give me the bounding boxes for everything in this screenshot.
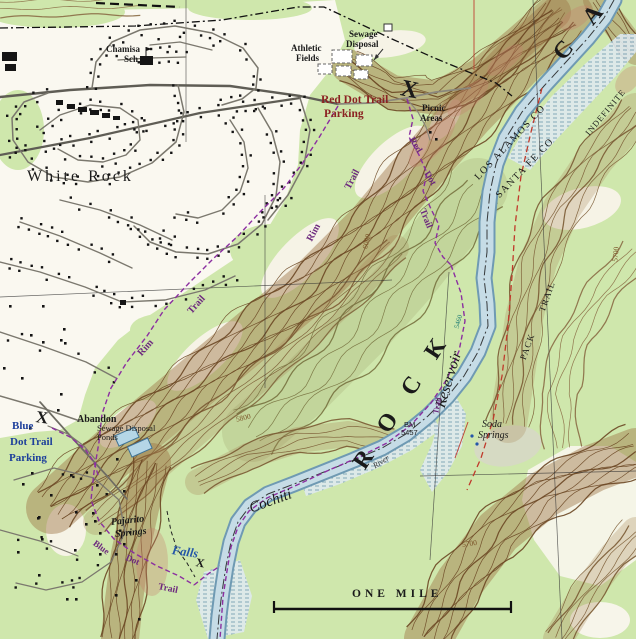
label-x-falls: X xyxy=(195,556,206,569)
label-town: White Rock xyxy=(27,169,134,185)
label-sewage-1: Sewage xyxy=(349,30,378,39)
spring-symbol xyxy=(470,434,473,437)
label-bm-elevation: 5457 xyxy=(401,429,418,437)
label-sewage-2: Disposal xyxy=(346,40,379,49)
label-school-2: Sch xyxy=(124,55,138,64)
label-picnic-1: Picnic xyxy=(422,104,446,113)
label-red-dot-parking-2: Parking xyxy=(324,109,364,121)
label-blue-parking-2: Dot Trail xyxy=(10,437,53,448)
label-blue-parking-3: Parking xyxy=(9,453,47,464)
picnic-symbol xyxy=(435,138,438,141)
label-contour-5700-south: 5700 xyxy=(461,539,477,549)
label-red-dot-parking-1: Red Dot Trail xyxy=(321,95,388,107)
label-abandon-3: Ponds xyxy=(97,433,118,442)
label-picnic-2: Areas xyxy=(420,114,442,123)
spring-symbol xyxy=(475,442,478,445)
label-contour-5700-east: 5700 xyxy=(611,246,620,262)
label-scale-one-mile: ONE MILE xyxy=(352,589,442,601)
topo-map: White Rock Chamisa Sch Sewage Disposal A… xyxy=(0,0,636,639)
label-x-blue-dot-parking: X xyxy=(35,408,50,427)
label-soda-1: Soda xyxy=(482,420,502,430)
label-athletic-2: Fields xyxy=(296,54,319,63)
label-soda-2: Springs xyxy=(478,431,509,441)
picnic-symbol xyxy=(429,131,432,134)
label-school-1: Chamisa xyxy=(106,45,140,54)
label-athletic-1: Athletic xyxy=(291,44,322,53)
label-blue-parking-1: Blue xyxy=(12,421,33,432)
